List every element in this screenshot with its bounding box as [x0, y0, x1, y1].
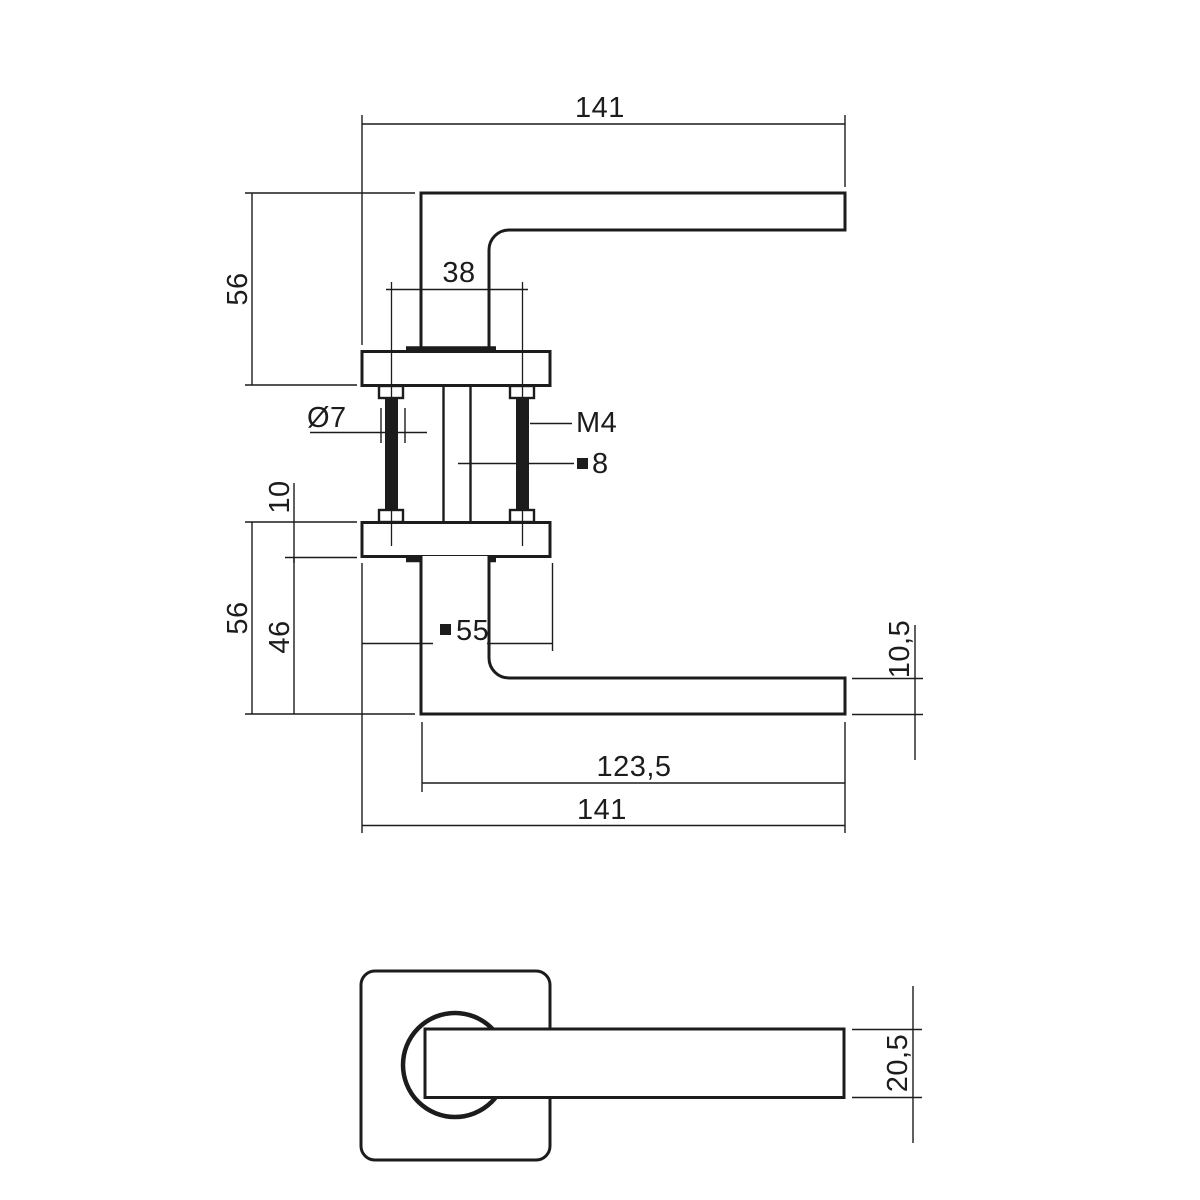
dim-bottom-overall: 141	[362, 794, 845, 826]
dim-lever-profile: 20,5	[852, 986, 922, 1143]
dim-grip-length: 123,5	[422, 722, 845, 833]
dim-bolt-diameter-label: Ø7	[307, 402, 347, 434]
spindle	[444, 386, 471, 523]
dim-bolt-diameter: Ø7	[307, 402, 427, 443]
dim-rose-thickness-label: 10	[264, 480, 296, 513]
square-symbol	[577, 458, 588, 469]
dim-lever-thickness-label: 10,5	[884, 620, 916, 678]
dim-lever-profile-label: 20,5	[882, 1034, 914, 1092]
dim-grip-height-label: 46	[264, 620, 296, 653]
door-handle-technical-drawing: 141 56 38 Ø7 M4 8	[0, 0, 1200, 1200]
dim-bottom-overall-label: 141	[577, 794, 627, 826]
dim-rose-thickness: 10	[245, 480, 357, 563]
left-bolt-threaded-rod	[385, 398, 398, 511]
right-bolt-threaded-rod	[516, 398, 529, 511]
dim-bolt-thread: M4	[530, 407, 617, 439]
dim-spindle-size-label: 8	[592, 448, 609, 480]
upper-lever-outline	[421, 193, 845, 352]
dim-top-height-label: 56	[222, 272, 254, 305]
dim-grip-length-label: 123,5	[596, 751, 671, 783]
left-bolt	[379, 386, 403, 522]
front-view: 20,5	[361, 971, 922, 1160]
dim-bolt-spacing: 38	[386, 257, 528, 290]
technical-drawing-page: 141 56 38 Ø7 M4 8	[0, 0, 1200, 1200]
right-bolt	[510, 386, 534, 522]
dim-lever-thickness: 10,5	[852, 620, 923, 760]
lower-rose	[362, 523, 550, 557]
dim-rose-size-label: 55	[456, 615, 489, 647]
dim-top-overall-label: 141	[575, 92, 625, 124]
lever-bar	[425, 1029, 844, 1098]
dim-bottom-height-label: 56	[222, 601, 254, 634]
dim-grip-height: 46	[264, 558, 296, 714]
dim-bolt-spacing-label: 38	[442, 257, 475, 289]
upper-rose	[362, 352, 550, 386]
dim-spindle-size: 8	[458, 448, 609, 480]
dim-bolt-thread-label: M4	[576, 407, 617, 439]
square-symbol	[440, 624, 451, 635]
